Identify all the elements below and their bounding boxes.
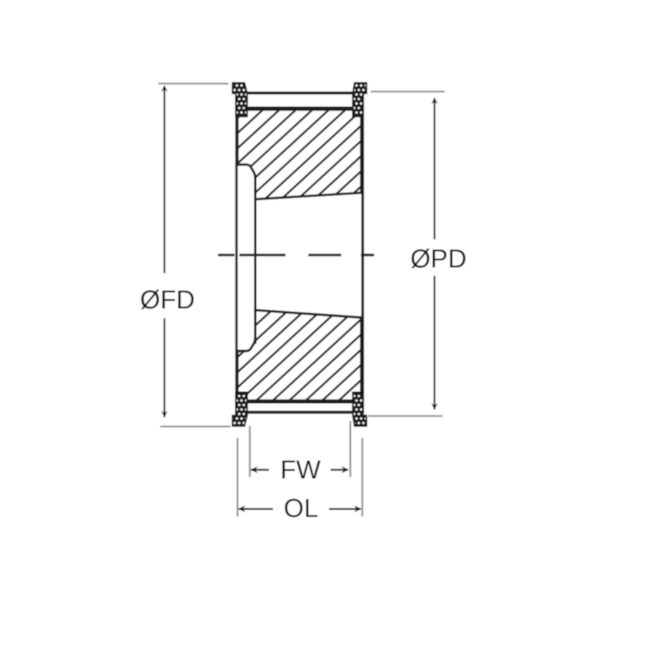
svg-text:ØFD: ØFD <box>140 285 195 315</box>
svg-text:ØPD: ØPD <box>410 244 466 274</box>
svg-text:OL: OL <box>284 493 319 523</box>
svg-text:FW: FW <box>280 454 321 484</box>
